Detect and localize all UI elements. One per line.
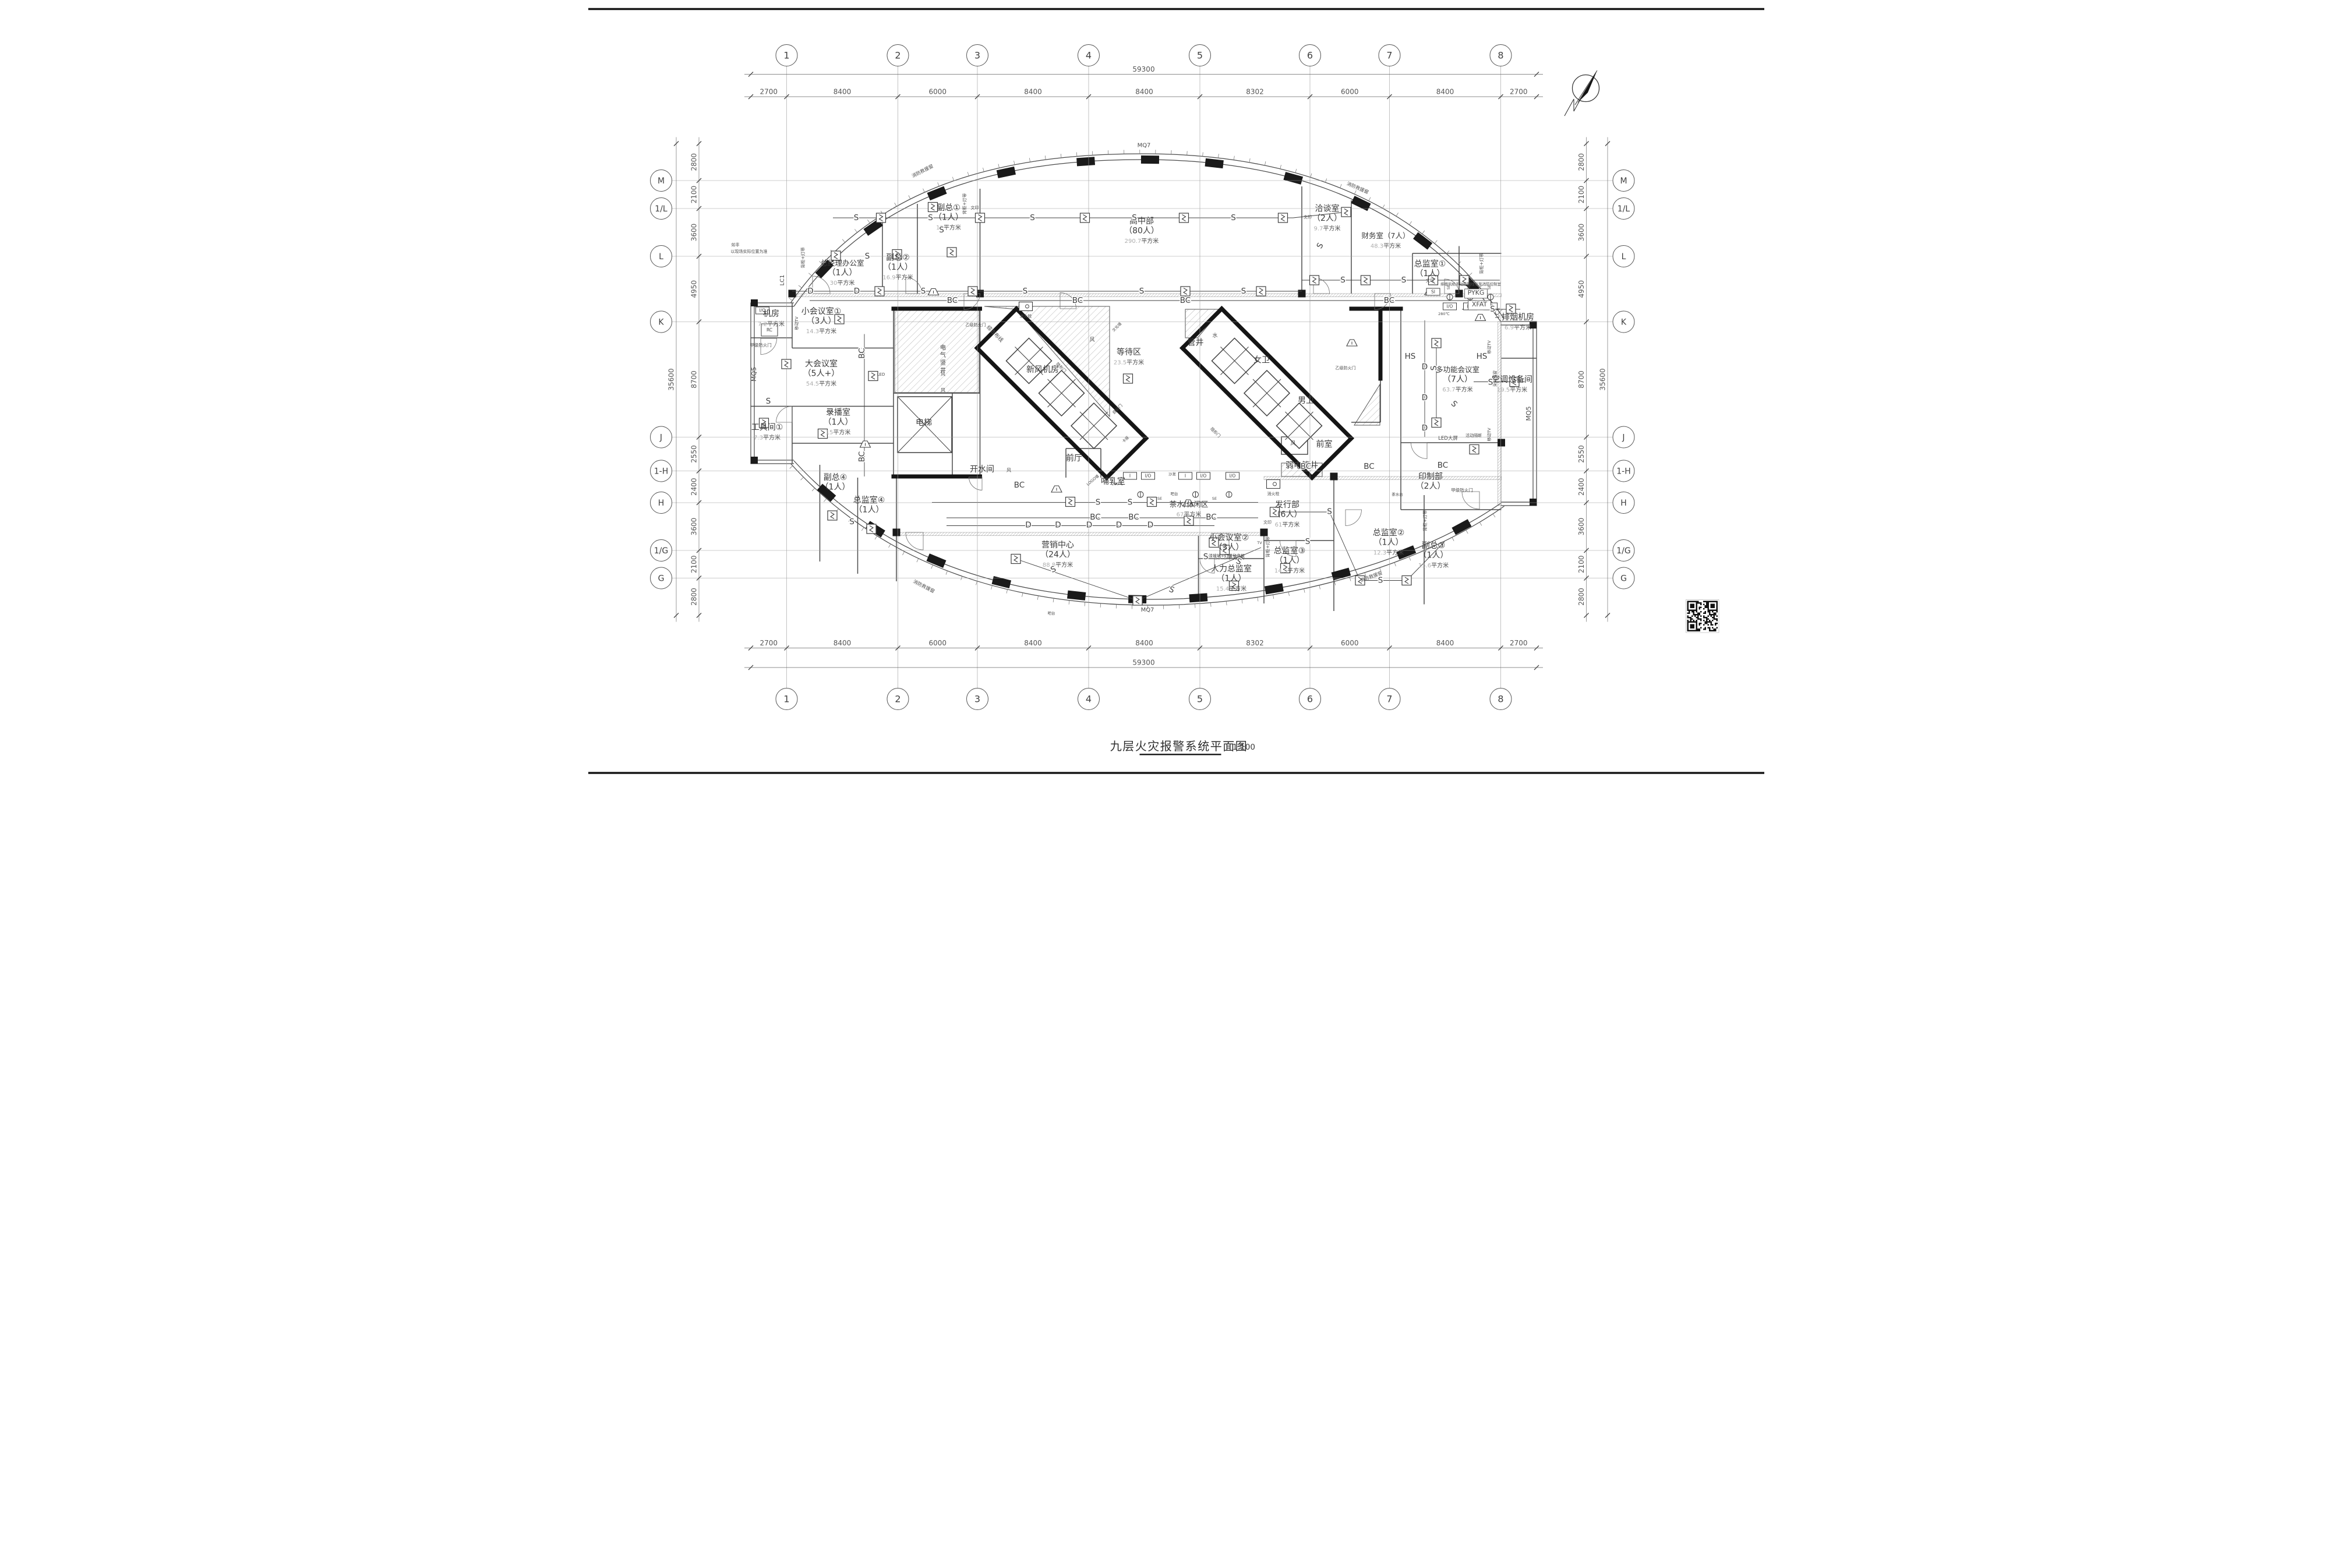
room-label: （1人） xyxy=(1415,269,1445,278)
dim-value: 8400 xyxy=(1135,88,1153,96)
room-label: 工具间① xyxy=(751,423,783,432)
annotation-label: 移动TV xyxy=(1486,428,1492,441)
bus-label-BC: BC xyxy=(1013,481,1024,490)
bus-label-S: S xyxy=(939,225,944,235)
dim-total: 59300 xyxy=(1132,65,1154,73)
smoke-detector-icon xyxy=(1432,418,1441,428)
room-label: （1人） xyxy=(854,506,884,515)
room-area: 88.8平方米 xyxy=(1042,561,1072,568)
dim-value: 2700 xyxy=(760,88,778,96)
dim-value: 2800 xyxy=(690,153,698,171)
bus-label-S: S xyxy=(1488,378,1493,387)
annotation-label: LED大屏 xyxy=(1438,435,1458,442)
smoke-detector-icon xyxy=(1470,445,1479,454)
bus-label-S: S xyxy=(765,397,771,406)
sheet-background xyxy=(588,0,1764,784)
annotation-label: 风 xyxy=(1089,337,1094,343)
dim-total: 35600 xyxy=(1598,368,1606,390)
room-label: 茶水/休闲区 xyxy=(1169,500,1208,508)
dim-value: 2800 xyxy=(1577,588,1585,606)
signal-circle-icon xyxy=(1488,294,1493,300)
dim-value: 2400 xyxy=(690,478,698,496)
bus-label-BC: BC xyxy=(1072,296,1082,305)
smoke-detector-icon xyxy=(1179,213,1188,223)
annotation-label: 背柜+灯带 xyxy=(1478,253,1484,274)
grid-bubble-label: 1-H xyxy=(1616,467,1631,476)
grid-bubble-label: L xyxy=(1621,252,1626,262)
smoke-detector-icon xyxy=(1309,276,1319,285)
room-label: （1人） xyxy=(1216,574,1246,584)
room-label: 副总④ xyxy=(823,473,847,482)
smoke-detector-icon xyxy=(1432,338,1441,348)
annotation-label: PYKG xyxy=(1467,289,1484,296)
dim-total: 59300 xyxy=(1132,659,1154,667)
grid-bubble-label: 2 xyxy=(895,694,900,705)
dim-value: 3600 xyxy=(1577,224,1585,242)
dim-value: 6000 xyxy=(1340,88,1358,96)
annotation-label: LED xyxy=(877,372,885,377)
bus-label-D: D xyxy=(1025,521,1031,530)
annotation-label: LC1 xyxy=(779,275,786,286)
room-area: 290.7平方米 xyxy=(1124,237,1159,245)
dim-value: 2400 xyxy=(1577,478,1585,496)
smoke-detector-icon xyxy=(968,287,977,296)
annotation-label: 280℃ xyxy=(1438,312,1450,316)
bus-label-S: S xyxy=(1095,498,1100,507)
bus-label-S: S xyxy=(1231,213,1236,223)
floorplan-canvas: 1122334455667788MM1/L1/LLLKKJJ1-H1-HHH1/… xyxy=(588,0,1764,784)
annotation-label: SE xyxy=(1467,285,1471,289)
smoke-detector-icon xyxy=(1256,287,1266,296)
dim-value: 2100 xyxy=(1577,186,1585,204)
room-label: （3人） xyxy=(806,317,836,326)
room-label: 发行部 xyxy=(1275,500,1299,510)
annotation-label: MQ7 xyxy=(1137,143,1150,149)
bus-label-S: S xyxy=(1241,287,1246,296)
annotation-label: MQ7 xyxy=(1140,607,1154,613)
room-label: 电梯 xyxy=(916,418,932,428)
grid-bubble-label: M xyxy=(1620,176,1627,186)
annotation-label: 水 xyxy=(1212,332,1217,339)
room-label: 总监室① xyxy=(1414,259,1446,269)
smoke-detector-icon xyxy=(1011,555,1020,564)
dim-value: 2700 xyxy=(1509,88,1527,96)
io-box: I xyxy=(1178,472,1192,479)
io-box-label: SI xyxy=(1431,289,1435,295)
room-label: 人力总监室 xyxy=(1211,564,1252,574)
annotation-label: MQ5 xyxy=(750,367,758,382)
grid-bubble-label: M xyxy=(657,176,664,186)
bus-label-S: S xyxy=(1022,287,1027,296)
room-area: 30平方米 xyxy=(829,279,854,287)
room-area: 7.2平方米 xyxy=(758,320,785,328)
room-label: 总监室④ xyxy=(853,495,885,505)
room-label: 空调设备间 xyxy=(1492,375,1532,384)
room-label: （24人） xyxy=(1040,550,1075,560)
signal-circle-icon xyxy=(1447,294,1453,300)
room-area: 15.4平方米 xyxy=(1216,585,1246,592)
grid-bubble-label: 7 xyxy=(1386,694,1392,705)
grid-bubble-label: G xyxy=(658,574,664,584)
grid-bubble-label: J xyxy=(1622,433,1624,443)
smoke-detector-icon xyxy=(782,359,791,369)
annotation-label: LC1 xyxy=(1495,308,1501,319)
annotation-label: 消火栓 xyxy=(1267,491,1279,496)
dim-value: 6000 xyxy=(1340,639,1358,647)
smoke-detector-icon xyxy=(928,203,937,212)
dim-value: 6000 xyxy=(928,639,947,647)
dim-value: 8302 xyxy=(1246,639,1264,647)
room-label: 总监室③ xyxy=(1273,546,1305,556)
room-area: 19.5平方米 xyxy=(1496,386,1527,394)
dim-value: 8400 xyxy=(1135,639,1153,647)
annotation-label: 文印 xyxy=(1426,278,1434,283)
smoke-detector-icon xyxy=(1147,497,1156,507)
bus-label-D: D xyxy=(1055,521,1061,530)
io-box: I/O xyxy=(1226,472,1239,479)
grid-bubble-label: H xyxy=(1620,499,1627,508)
bus-label-BC: BC xyxy=(1383,296,1394,305)
grid-bubble-label: 1/G xyxy=(654,546,668,556)
room-label: （2人） xyxy=(1312,214,1342,223)
io-box-label: I/O xyxy=(1200,474,1206,479)
grid-bubble-label: 8 xyxy=(1498,50,1503,61)
dim-value: 8400 xyxy=(833,639,851,647)
smoke-detector-icon xyxy=(828,511,837,520)
room-area: 15平方米 xyxy=(825,429,850,436)
annotation-label: 风 xyxy=(941,372,945,377)
dim-value: 3600 xyxy=(1577,518,1585,536)
io-box: I/O xyxy=(1196,472,1210,479)
smoke-detector-icon xyxy=(1402,576,1411,585)
bus-label-S: S xyxy=(1429,366,1439,371)
room-label: 前厅 xyxy=(1066,453,1082,463)
room-label: 开水间 xyxy=(970,465,994,474)
room-label: （5人+） xyxy=(803,369,839,379)
grid-bubble-label: K xyxy=(1620,318,1626,327)
annotation-label: 采光高窗 xyxy=(1492,370,1498,387)
grid-bubble-label: 1/G xyxy=(1616,546,1630,556)
bus-label-D: D xyxy=(853,287,859,296)
dim-value: 3600 xyxy=(690,224,698,242)
structural-column xyxy=(1189,593,1207,602)
bus-label-D: D xyxy=(1115,521,1121,530)
io-box: I/O xyxy=(1443,303,1456,310)
smoke-detector-icon xyxy=(1080,213,1089,223)
bus-label-D: D xyxy=(807,287,813,296)
annotation-label: 背柜+灯带 xyxy=(961,193,967,214)
smoke-detector-icon xyxy=(1361,276,1370,285)
dim-value: 8700 xyxy=(1577,370,1585,389)
dim-value: 2700 xyxy=(760,639,778,647)
bus-label-S: S xyxy=(928,213,933,223)
smoke-detector-icon xyxy=(867,524,876,534)
annotation-label: 沙发 xyxy=(1168,471,1177,476)
dim-value: 8400 xyxy=(833,88,851,96)
dim-value: 2100 xyxy=(1577,555,1585,573)
dim-value: 8400 xyxy=(1024,639,1042,647)
bus-label-HS: HS xyxy=(1476,352,1487,361)
room-label: 小会议室① xyxy=(801,306,841,316)
bus-label-D: D xyxy=(1421,362,1427,372)
dim-value: 2100 xyxy=(690,186,698,204)
grid-bubble-label: J xyxy=(659,433,662,443)
annotation-label: MQ5 xyxy=(1525,406,1532,421)
bus-label-D: D xyxy=(1421,393,1427,402)
room-label: 副总① xyxy=(937,203,960,213)
smoke-detector-icon xyxy=(1506,304,1516,313)
grid-bubble-label: 2 xyxy=(895,50,900,61)
grid-bubble-label: 6 xyxy=(1306,694,1312,705)
room-area: 6.9平方米 xyxy=(1505,324,1531,331)
room-area: 16.9平方米 xyxy=(882,274,913,281)
dim-value: 8400 xyxy=(1436,88,1454,96)
room-label: 总监室② xyxy=(1372,528,1404,538)
bus-label-HS: HS xyxy=(1404,352,1415,361)
bus-label-S: S xyxy=(1378,576,1383,585)
dim-total: 35600 xyxy=(667,368,675,390)
bus-label-S: S xyxy=(1139,287,1144,296)
smoke-detector-icon xyxy=(947,248,956,257)
dim-value: 2100 xyxy=(690,555,698,573)
annotation-label: 茶水台 xyxy=(1392,492,1403,497)
dim-value: 2550 xyxy=(1577,445,1585,463)
grid-bubble-label: 3 xyxy=(974,694,980,705)
annotation-label: 风 xyxy=(1290,440,1295,447)
bus-label-S: S xyxy=(1305,537,1310,546)
room-label: 大会议室 xyxy=(805,359,838,369)
annotation-label: XFAT xyxy=(1471,301,1487,308)
room-label: 男卫 xyxy=(1298,396,1314,405)
dim-value: 3600 xyxy=(690,518,698,536)
bus-label-D: D xyxy=(1147,521,1153,530)
drawing-scale: 1:100 xyxy=(1232,743,1255,752)
annotation-label: 以现场实际位置为准 xyxy=(730,249,767,254)
io-box-label: RC xyxy=(766,327,772,333)
room-label: （1人） xyxy=(1418,551,1448,560)
dim-value: 2550 xyxy=(690,445,698,463)
dim-value: 8400 xyxy=(1024,88,1042,96)
room-area: 14.5平方米 xyxy=(1274,567,1304,574)
annotation-label: SE xyxy=(1487,285,1492,289)
annotation-label: TV xyxy=(826,409,832,414)
bus-label-BC: BC xyxy=(857,348,867,358)
room-area: 63.7平方米 xyxy=(1442,386,1472,393)
room-label: （2人） xyxy=(1415,482,1445,491)
annotation-label: 吧台 xyxy=(1047,610,1055,616)
smoke-detector-icon xyxy=(1065,497,1075,507)
room-label: （7人） xyxy=(1443,375,1472,384)
room-area: 54.5平方米 xyxy=(806,380,836,387)
grid-bubble-label: 5 xyxy=(1196,694,1202,705)
smoke-detector-icon xyxy=(975,213,984,223)
dim-value: 8700 xyxy=(690,370,698,389)
bus-label-BC: BC xyxy=(1206,513,1216,522)
smoke-detector-icon xyxy=(1123,374,1132,383)
room-label: 女卫 xyxy=(1253,355,1270,365)
grid-bubble-label: 6 xyxy=(1306,50,1312,61)
smoke-detector-icon xyxy=(876,213,885,223)
smoke-detector-icon xyxy=(1341,207,1351,217)
bus-label-BC: BC xyxy=(1300,462,1311,471)
dim-value: 8400 xyxy=(1436,639,1454,647)
room-label: 气 xyxy=(940,351,946,359)
grid-bubble-label: 8 xyxy=(1498,694,1503,705)
smoke-detector-icon xyxy=(1278,213,1287,223)
bus-label-S: S xyxy=(920,287,926,296)
smoke-detector-icon xyxy=(868,372,878,381)
bus-label-BC: BC xyxy=(1128,513,1139,522)
bus-label-BC: BC xyxy=(1179,296,1190,305)
grid-bubble-label: 4 xyxy=(1085,694,1091,705)
title-underline xyxy=(1139,754,1221,755)
annotation-label: SE xyxy=(1157,496,1161,501)
room-area: 23.5平方米 xyxy=(1113,359,1143,366)
grid-bubble-label: G xyxy=(1620,574,1627,584)
room-label: 排烟机房 xyxy=(1502,313,1534,322)
room-label: （6人） xyxy=(1272,510,1302,520)
annotation-label: 风 xyxy=(1007,468,1011,473)
bus-label-S: S xyxy=(1327,507,1332,517)
io-box-label: I/O xyxy=(1446,304,1453,309)
room-label: （80人） xyxy=(1124,227,1159,236)
dim-value: 4950 xyxy=(1577,280,1585,298)
room-label: （3人） xyxy=(1214,543,1244,552)
grid-bubble-label: 3 xyxy=(974,50,980,61)
signal-circle-icon xyxy=(1226,492,1232,497)
grid-bubble-label: 5 xyxy=(1196,50,1202,61)
room-label: 管井 xyxy=(1187,338,1203,348)
bus-label-BC: BC xyxy=(947,296,957,305)
io-box: SI xyxy=(1426,288,1440,295)
annotation-label: 文印 xyxy=(970,205,979,210)
room-label: 竖 xyxy=(940,359,946,366)
annotation-label: 移动TV xyxy=(794,316,799,330)
dim-value: 4950 xyxy=(690,280,698,298)
structural-column xyxy=(1076,157,1095,166)
room-label: （1人） xyxy=(1274,556,1304,566)
bus-label-BC: BC xyxy=(1437,461,1447,470)
bus-label-S: S xyxy=(849,517,854,527)
title-block: 九层火灾报警系统平面图 1:100 xyxy=(1110,739,1255,755)
io-box-label: I/O xyxy=(1145,474,1151,479)
room-area: 67平方米 xyxy=(1176,511,1201,518)
bus-label-S: S xyxy=(1203,552,1208,561)
room-label: 前室 xyxy=(1316,439,1332,449)
bus-label-BC: BC xyxy=(857,451,867,462)
annotation-label: 背柜+灯带 xyxy=(1422,510,1428,531)
dim-value: 2800 xyxy=(1577,153,1585,171)
bus-label-S: S xyxy=(1340,276,1345,285)
grid-bubble-label: 7 xyxy=(1386,50,1392,61)
bus-label-S: S xyxy=(1401,276,1406,285)
grid-bubble-label: 4 xyxy=(1085,50,1091,61)
annotation-label: 甲级防火门 xyxy=(750,342,772,348)
drawing-title: 九层火灾报警系统平面图 xyxy=(1110,739,1248,753)
annotation-label: 如非 xyxy=(731,242,739,248)
smoke-detector-icon xyxy=(1133,596,1142,605)
annotation-label: 文印 xyxy=(1263,520,1272,525)
grid-bubble-label: 1-H xyxy=(654,467,668,476)
room-area: 14.3平方米 xyxy=(806,327,836,335)
room-label: 小会议室② xyxy=(1209,533,1249,543)
annotation-label: SE xyxy=(1446,285,1451,289)
room-area: 48.3平方米 xyxy=(1370,242,1400,250)
room-label: 营销中心 xyxy=(1041,541,1074,550)
room-label: （1人） xyxy=(934,213,963,223)
room-label: 印制部 xyxy=(1418,472,1443,482)
dim-value: 6000 xyxy=(928,88,947,96)
annotation-label: TV xyxy=(1256,541,1262,545)
grid-bubble-label: 1 xyxy=(783,694,789,705)
room-label: 副总③ xyxy=(1421,541,1445,550)
annotation-label: 吧台 xyxy=(1170,491,1178,496)
fire-hydrant-icon xyxy=(1019,302,1032,311)
room-label: （1人） xyxy=(1373,538,1403,548)
annotation-label: 乙级防火门 xyxy=(1335,365,1355,370)
bus-label-S: S xyxy=(1490,305,1495,314)
grid-bubble-label: 1/L xyxy=(655,204,668,214)
room-label: 总经理办公室 xyxy=(820,259,864,267)
grid-bubble-label: K xyxy=(658,318,664,327)
dim-value: 8302 xyxy=(1246,88,1264,96)
io-box-label: I/O xyxy=(1229,474,1235,479)
room-label: （1人） xyxy=(883,263,913,272)
room-label: 电 xyxy=(940,344,946,351)
bus-label-S: S xyxy=(1030,213,1035,223)
annotation-label: 文印 xyxy=(1304,214,1312,220)
room-label: 洽谈室 xyxy=(1315,204,1339,214)
grid-bubble-label: H xyxy=(658,499,664,508)
fire-hydrant-icon xyxy=(1266,480,1280,489)
annotation-label: 280℃ xyxy=(1111,482,1123,486)
room-label: 多功能会议室 xyxy=(1435,365,1479,374)
room-label: 机房 xyxy=(763,309,779,319)
room-area: 61平方米 xyxy=(1274,521,1299,528)
signal-circle-icon xyxy=(1192,492,1198,497)
smoke-detector-icon xyxy=(1181,287,1190,296)
annotation-label: 活动隔断 xyxy=(1465,433,1482,438)
room-label: （1人） xyxy=(827,269,857,278)
grid-bubble-label: 1/L xyxy=(1617,204,1630,214)
bus-label-D: D xyxy=(1421,423,1427,433)
bus-label-S: S xyxy=(1127,498,1132,507)
annotation-label: SE xyxy=(1212,496,1216,501)
io-box-label: I xyxy=(1129,474,1130,479)
smoke-detector-icon xyxy=(875,287,884,296)
room-label: 财务室（7人） xyxy=(1361,231,1410,240)
room-label: （1人） xyxy=(823,418,853,427)
io-box: I/O xyxy=(1141,472,1154,479)
qr-code xyxy=(1686,600,1719,633)
room-area: 9.7平方米 xyxy=(1313,225,1340,232)
annotation-label: 消火栓 xyxy=(1019,313,1032,319)
io-box-label: I xyxy=(1184,474,1185,479)
room-area: 7.3平方米 xyxy=(754,434,781,442)
room-label: 副总② xyxy=(886,253,910,263)
annotation-label: 背柜+灯带 xyxy=(1265,536,1270,557)
room-area: 15.6平方米 xyxy=(1418,561,1448,569)
bus-label-S: S xyxy=(853,213,859,223)
annotation-label: 甲级防火门 xyxy=(1451,487,1473,493)
annotation-label: 背柜+灯带 xyxy=(800,247,806,269)
bus-label-S: S xyxy=(1132,213,1137,223)
room-label: 新风机房 xyxy=(1026,365,1059,375)
dim-value: 2800 xyxy=(690,588,698,606)
structural-column xyxy=(1140,156,1159,164)
bus-label-S: S xyxy=(864,252,870,261)
room-label: （1人） xyxy=(820,483,850,492)
